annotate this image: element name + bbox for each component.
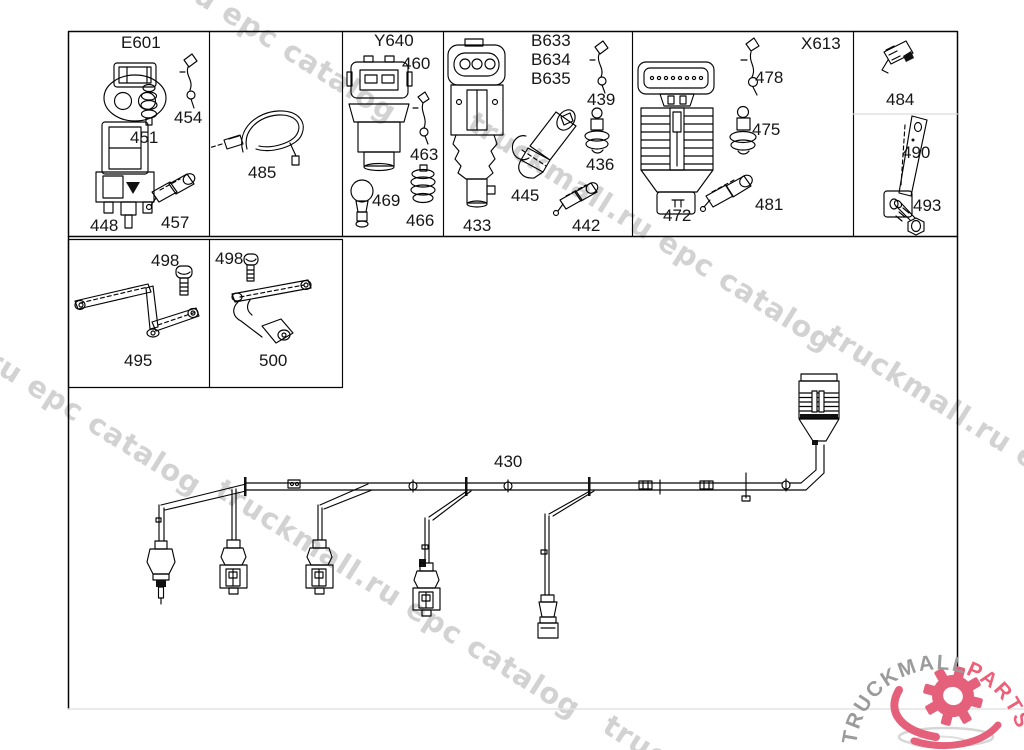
parts-catalog-page: truckmall.ru epc catalog truckmall.ru ep… [0, 0, 1024, 750]
truckmall-logo: TRUCKMALLPARTS [0, 0, 1024, 750]
